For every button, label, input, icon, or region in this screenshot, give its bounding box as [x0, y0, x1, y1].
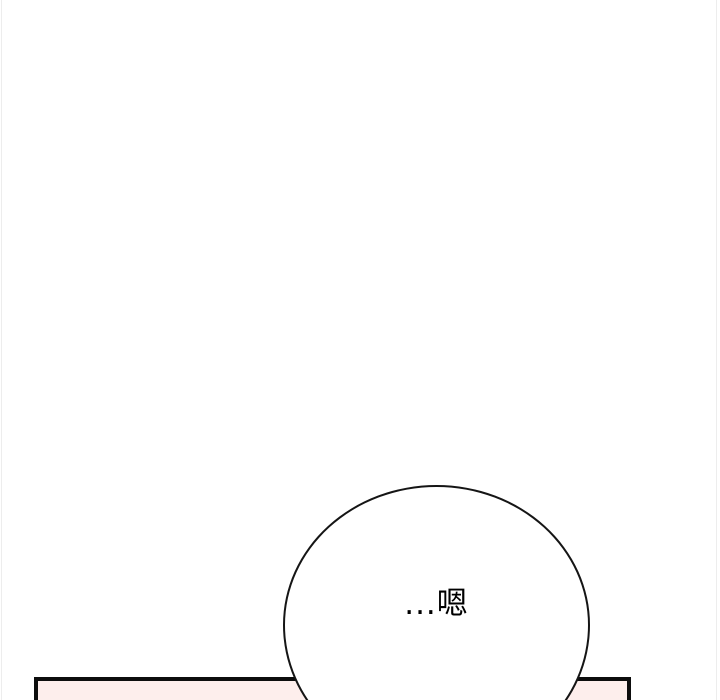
page-left-edge-line	[1, 0, 2, 700]
speech-bubble-text: ...嗯	[283, 588, 590, 620]
page-right-edge-line	[716, 0, 717, 700]
webtoon-page: ...嗯	[0, 0, 720, 700]
